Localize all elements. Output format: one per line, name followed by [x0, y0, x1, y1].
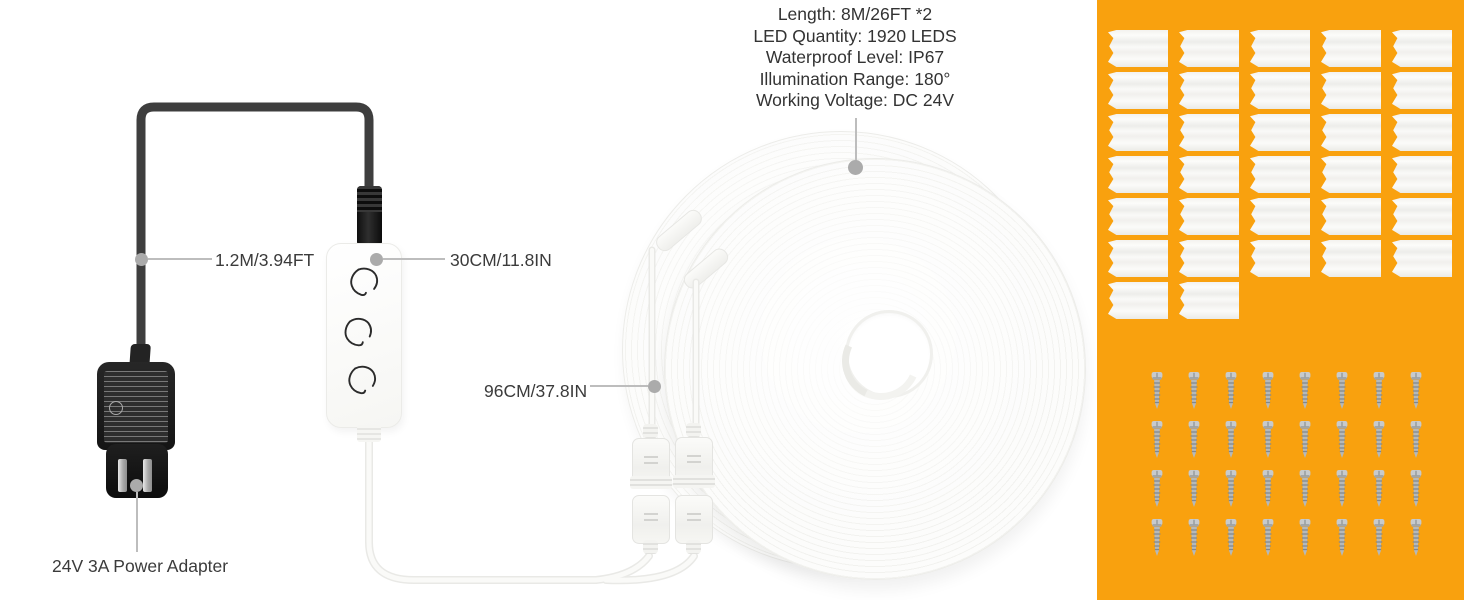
leader-dot — [130, 479, 143, 492]
leader-line — [590, 385, 648, 387]
leaf-icon — [342, 360, 383, 398]
screw — [1335, 518, 1349, 558]
connector-strain-stub — [643, 424, 658, 438]
leader-line — [136, 492, 138, 552]
screw — [1409, 518, 1423, 558]
screw — [1409, 469, 1423, 509]
mounting-clip — [1108, 282, 1168, 319]
leader-dot — [648, 380, 661, 393]
screw — [1224, 518, 1238, 558]
screw — [1261, 518, 1275, 558]
screw — [1187, 371, 1201, 411]
screw — [1261, 371, 1275, 411]
callout-controller-cable: 30CM/11.8IN — [450, 250, 552, 271]
accessories-panel — [1097, 0, 1464, 600]
strip-connector — [632, 495, 670, 544]
callout-splitter-cable: 96CM/37.8IN — [484, 381, 587, 402]
mounting-clip — [1321, 198, 1381, 235]
screw — [1409, 420, 1423, 460]
screws-grid — [1150, 371, 1423, 558]
mounting-clip — [1108, 72, 1168, 109]
mounting-clip — [1321, 156, 1381, 193]
screw — [1298, 469, 1312, 509]
callout-adapter-cable: 1.2M/3.94FT — [215, 250, 314, 271]
connector-strain-stub — [686, 423, 701, 437]
connector-strain-stub — [643, 540, 658, 554]
leader-dot — [848, 160, 863, 175]
mounting-clip — [1179, 30, 1239, 67]
strip-connector — [675, 437, 713, 486]
mounting-clip — [1321, 114, 1381, 151]
mounting-clip — [1321, 30, 1381, 67]
mounting-clip — [1179, 240, 1239, 277]
screw — [1298, 518, 1312, 558]
screw — [1372, 469, 1386, 509]
mounting-clip — [1108, 240, 1168, 277]
screw — [1224, 371, 1238, 411]
leader-line — [855, 118, 857, 164]
adapter-spec-label — [104, 371, 168, 443]
spec-line: Length: 8M/26FT *2 — [700, 4, 1010, 26]
mounting-clips-grid — [1108, 30, 1452, 319]
mounting-clip — [1392, 30, 1452, 67]
mounting-clip — [1108, 30, 1168, 67]
mounting-clip — [1108, 198, 1168, 235]
screw — [1261, 420, 1275, 460]
mounting-clip — [1108, 114, 1168, 151]
screw — [1187, 518, 1201, 558]
mounting-clip — [1392, 198, 1452, 235]
spec-line: Working Voltage: DC 24V — [700, 90, 1010, 112]
leader-dot — [370, 253, 383, 266]
leader-line — [383, 258, 445, 260]
spec-line: Waterproof Level: IP67 — [700, 47, 1010, 69]
connector-strain-stub — [686, 540, 701, 554]
screw — [1409, 371, 1423, 411]
mounting-clip — [1250, 240, 1310, 277]
mounting-clip — [1321, 72, 1381, 109]
controller-output-cable — [606, 556, 694, 580]
mounting-clip — [1179, 198, 1239, 235]
screw — [1372, 420, 1386, 460]
screw — [1150, 420, 1164, 460]
controller-output-cable — [369, 424, 649, 580]
leader-dot — [135, 253, 148, 266]
spec-line: Illumination Range: 180° — [700, 69, 1010, 91]
dc-plug — [357, 186, 382, 246]
mounting-clip — [1392, 240, 1452, 277]
screw — [1187, 420, 1201, 460]
plug-prong — [143, 459, 152, 492]
mounting-clip — [1321, 240, 1381, 277]
callout-power-adapter: 24V 3A Power Adapter — [52, 556, 228, 577]
screw — [1187, 469, 1201, 509]
mounting-clip — [1250, 30, 1310, 67]
screw — [1335, 420, 1349, 460]
mounting-clip — [1179, 282, 1239, 319]
leaf-icon — [336, 310, 381, 352]
screw — [1261, 469, 1275, 509]
mounting-clip — [1250, 198, 1310, 235]
mounting-clip — [1392, 72, 1452, 109]
screw — [1224, 469, 1238, 509]
screw — [1372, 371, 1386, 411]
screw — [1150, 371, 1164, 411]
led-controller — [326, 243, 402, 428]
controller-cable-strain — [357, 425, 381, 442]
mounting-clip — [1392, 114, 1452, 151]
screw — [1224, 420, 1238, 460]
leader-line — [148, 258, 212, 260]
screw — [1335, 371, 1349, 411]
plug-prong — [118, 459, 127, 492]
mounting-clip — [1392, 156, 1452, 193]
screw — [1372, 518, 1386, 558]
mounting-clip — [1108, 156, 1168, 193]
mounting-clip — [1179, 114, 1239, 151]
spec-line: LED Quantity: 1920 LEDS — [700, 26, 1010, 48]
strip-connector — [632, 438, 670, 487]
leaf-icon — [346, 264, 384, 298]
strip-connector — [675, 495, 713, 544]
screw — [1150, 469, 1164, 509]
screw — [1298, 420, 1312, 460]
product-infographic: Length: 8M/26FT *2 LED Quantity: 1920 LE… — [0, 0, 1464, 600]
mounting-clip — [1250, 114, 1310, 151]
screw — [1335, 469, 1349, 509]
mounting-clip — [1179, 72, 1239, 109]
spec-list: Length: 8M/26FT *2 LED Quantity: 1920 LE… — [700, 4, 1010, 112]
mounting-clip — [1250, 72, 1310, 109]
mounting-clip — [1250, 156, 1310, 193]
screw — [1150, 518, 1164, 558]
mounting-clip — [1179, 156, 1239, 193]
screw — [1298, 371, 1312, 411]
